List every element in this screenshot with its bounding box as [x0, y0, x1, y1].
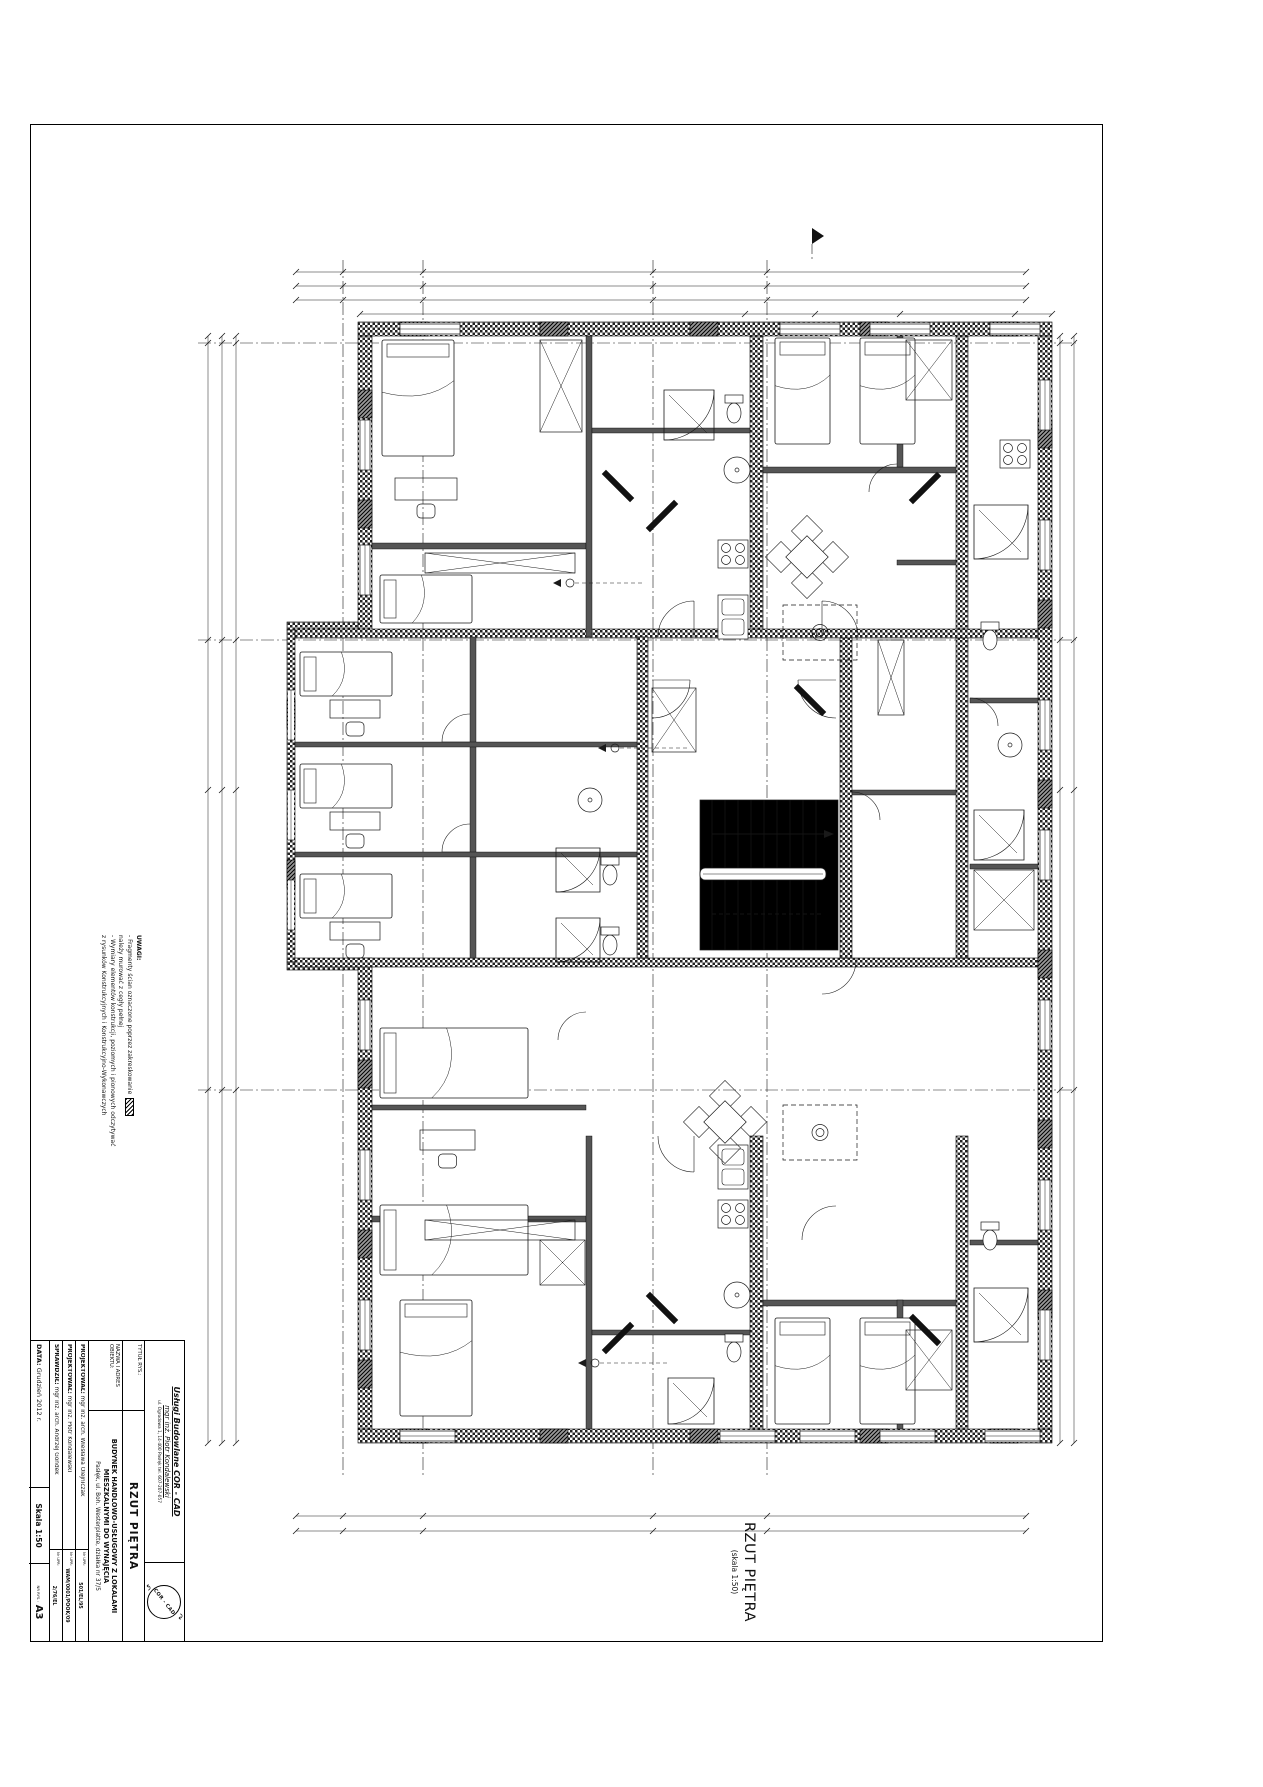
plan-title-main: RZUT PIĘTRA: [741, 1512, 757, 1632]
sheet-format: A3: [34, 1605, 45, 1620]
title-block: Usługi Budowlane COR - CAD mgr inż. Piot…: [30, 1340, 185, 1642]
note-line: z rysunków Konstrukcyjnych i Konstrukcyj…: [99, 935, 107, 1262]
designer-1-licence: 501/EL/95: [78, 1582, 83, 1609]
designer-2-licence: WAM/0001/POOK/09: [65, 1568, 70, 1622]
designer-1: PROJEKTOWAŁ: mgr inż. arch. Wiesława Ole…: [79, 1341, 85, 1549]
note-line: - Fragmenty ścian oznaczone poprzez zakr…: [124, 935, 133, 1262]
scale: Skala 1:50: [29, 1487, 49, 1563]
notes-block: UWAGI: - Fragmenty ścian oznaczone poprz…: [96, 935, 142, 1262]
sheet-number: NR RYS.: A3: [29, 1563, 49, 1641]
plan-title: RZUT PIĘTRA (skala 1:50): [709, 1512, 757, 1632]
company-logo: COR - CAD ↷ ↶: [145, 1562, 184, 1641]
company-address: ul. Ogrodowa 1, 14-400 Pasłęk tel. 607-2…: [156, 1341, 161, 1562]
company-info: Usługi Budowlane COR - CAD mgr inż. Piot…: [145, 1341, 184, 1562]
hatch-legend-swatch: [125, 1098, 134, 1116]
logo-arrow-icon: ↷: [176, 1613, 185, 1620]
company-person: mgr inż. Piotr Kondalewski: [163, 1341, 171, 1562]
object-name: BUDYNEK HANDLOWO-USŁUGOWY Z LOKALAMI MIE…: [101, 1411, 116, 1641]
drawing-title: RZUT PIĘTRA: [123, 1411, 144, 1641]
note-line: - Wymiary elementów konstrukcji, poziomy…: [107, 935, 115, 1262]
drawing-title-label: TYTUŁ RYS.:: [123, 1341, 144, 1411]
note-line: należy murować z cegły pełnej: [116, 935, 124, 1262]
checker: SPRAWDZIŁ: mgr inż. arch. Andrzej Gondek: [53, 1341, 59, 1549]
floor-plan-svg: [0, 0, 1263, 1787]
logo-arrow-icon: ↶: [144, 1584, 153, 1591]
plan-title-scale: (skala 1:50): [730, 1512, 739, 1632]
checker-licence: 2/76/EL: [52, 1586, 57, 1606]
logo-circle-icon: COR - CAD ↷ ↶: [148, 1585, 182, 1619]
designer-2: PROJEKTOWAŁ: mgr inż. Piotr Kondalewski: [66, 1341, 72, 1549]
section-flag: [812, 228, 824, 244]
drawing-page: Usługi Budowlane COR - CAD mgr inż. Piot…: [0, 0, 1263, 1787]
notes-lines: - Fragmenty ścian oznaczone poprzez zakr…: [99, 935, 134, 1262]
date: DATA: Grudzień 2012 r.: [35, 1341, 43, 1487]
object-label: NAZWA I ADRES OBIEKTU:: [89, 1341, 122, 1411]
company-name: Usługi Budowlane COR - CAD: [172, 1341, 181, 1562]
notes-heading: UWAGI:: [134, 935, 142, 1262]
object-address: Pasłęk, ul. Boh. Westerplatte, działka n…: [94, 1461, 100, 1591]
